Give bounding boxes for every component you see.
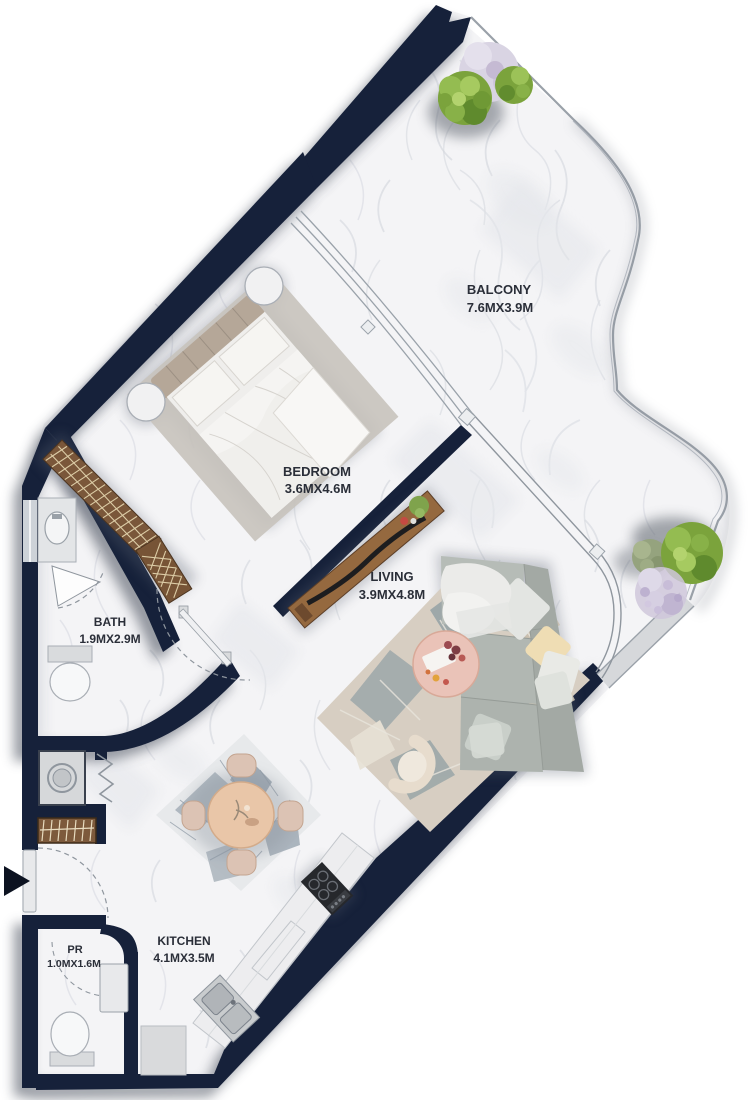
svg-text:3.6MX4.6M: 3.6MX4.6M: [285, 481, 351, 496]
svg-text:1.9MX2.9M: 1.9MX2.9M: [79, 632, 140, 646]
svg-text:LIVING: LIVING: [370, 569, 413, 584]
svg-text:KITCHEN: KITCHEN: [157, 934, 210, 948]
svg-text:4.1MX3.5M: 4.1MX3.5M: [153, 951, 214, 965]
svg-text:BATH: BATH: [94, 615, 126, 629]
svg-text:BALCONY: BALCONY: [467, 282, 532, 297]
svg-text:3.9MX4.8M: 3.9MX4.8M: [359, 587, 425, 602]
svg-text:1.0MX1.6M: 1.0MX1.6M: [47, 958, 101, 970]
svg-text:PR: PR: [67, 944, 82, 956]
svg-text:7.6MX3.9M: 7.6MX3.9M: [467, 300, 533, 315]
svg-text:BEDROOM: BEDROOM: [283, 464, 351, 479]
